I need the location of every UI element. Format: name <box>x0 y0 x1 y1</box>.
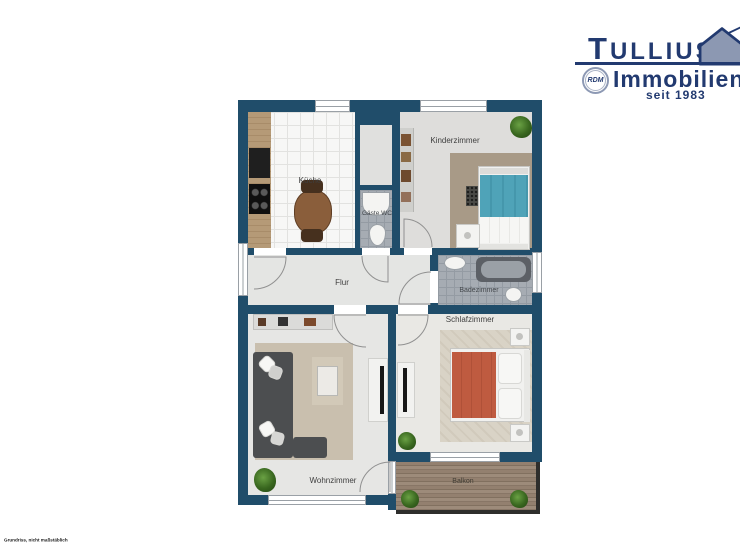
nightstand-bottom <box>510 424 530 442</box>
window-badezimmer <box>532 252 542 293</box>
sofa-horizontal <box>293 437 327 458</box>
kinder-nightstand <box>456 224 480 248</box>
wall-flur-bad-b <box>430 303 438 305</box>
schlaf-bed-headboard <box>524 350 530 422</box>
tv-icon-wohn <box>380 366 384 414</box>
label-kueche: Küche <box>280 176 340 185</box>
label-badezimmer: Badezimmer <box>429 287 529 294</box>
wall-mid1-b <box>286 248 362 255</box>
shelf-box-3 <box>401 170 411 182</box>
wall-flur-bad-a <box>430 255 438 271</box>
kinder-bed-duvet <box>480 175 528 217</box>
wall-abstell-wc <box>360 185 392 190</box>
label-schlafzimmer: Schlafzimmer <box>420 315 520 324</box>
room-abstellraum-floor <box>360 125 392 185</box>
window-wohnzimmer <box>268 495 366 505</box>
balkon-railing-right <box>536 462 540 514</box>
company-logo: Tullius RDM Immobilien seit 1983 <box>0 0 740 110</box>
schlaf-bed-duvet <box>452 352 496 418</box>
plant-icon-balkon-left <box>401 490 419 508</box>
window-kinderzimmer <box>420 100 487 112</box>
rdm-badge-icon: RDM <box>582 67 609 94</box>
rdm-badge-label: RDM <box>588 77 604 84</box>
window-balkon <box>430 452 500 462</box>
kinder-bed-foot <box>480 244 528 249</box>
plant-icon-balkon-right <box>510 490 528 508</box>
balkon-railing-bottom <box>396 510 540 514</box>
sideboard-item-1 <box>258 318 266 326</box>
bathtub-inner <box>481 261 526 278</box>
wall-abstell-kinder <box>392 125 400 248</box>
sideboard-item-2 <box>278 317 288 326</box>
shelf-box-2 <box>401 152 411 162</box>
sink <box>444 256 466 270</box>
logo-since: seit 1983 <box>646 88 706 102</box>
plant-icon-schlaf <box>398 432 416 450</box>
label-gaeste-wc: Gäste WC <box>347 210 407 217</box>
tv-board-wohn <box>368 358 388 422</box>
label-wohnzimmer: Wohnzimmer <box>283 476 383 485</box>
wall-mid2-b <box>366 305 398 314</box>
tv-icon-schlaf <box>403 368 407 412</box>
entrance-door <box>238 243 248 296</box>
chair-bottom <box>301 229 323 242</box>
wall-mid1-c <box>390 248 404 255</box>
plant-icon-kinder <box>510 116 532 138</box>
nightstand-top <box>510 328 530 346</box>
label-kinderzimmer: Kinderzimmer <box>405 136 505 145</box>
wall-top-mid-chunk <box>355 112 400 125</box>
kinder-bed-headboard <box>480 168 528 174</box>
plant-icon-wohn <box>254 468 276 492</box>
shelf-box-4 <box>401 192 411 202</box>
disclaimer-text: Grundriss, nicht maßstäblich <box>4 538 68 544</box>
logo-divider <box>575 62 740 65</box>
cooktop <box>249 184 270 214</box>
bed-pillow-2 <box>498 388 522 419</box>
wall-mid2-a <box>238 305 334 314</box>
label-flur: Flur <box>312 278 372 287</box>
wall-mid2-c <box>428 305 542 314</box>
page: Tullius RDM Immobilien seit 1983 <box>0 0 740 554</box>
sideboard-item-3 <box>304 318 316 326</box>
wall-top <box>238 100 542 112</box>
bed-pillow-1 <box>498 353 522 384</box>
oven <box>249 148 270 178</box>
house-icon <box>696 24 740 66</box>
coffee-table <box>317 366 338 396</box>
floor-plan: Küche Kinderzimmer Gäste WC Flur Badezim… <box>238 100 542 516</box>
kinder-bed-blanket <box>480 217 528 243</box>
label-balkon: Balkon <box>413 478 513 485</box>
kitchen-counter <box>248 112 271 248</box>
dining-table <box>294 190 332 234</box>
window-kueche <box>315 100 350 112</box>
balkon-door <box>388 461 396 494</box>
